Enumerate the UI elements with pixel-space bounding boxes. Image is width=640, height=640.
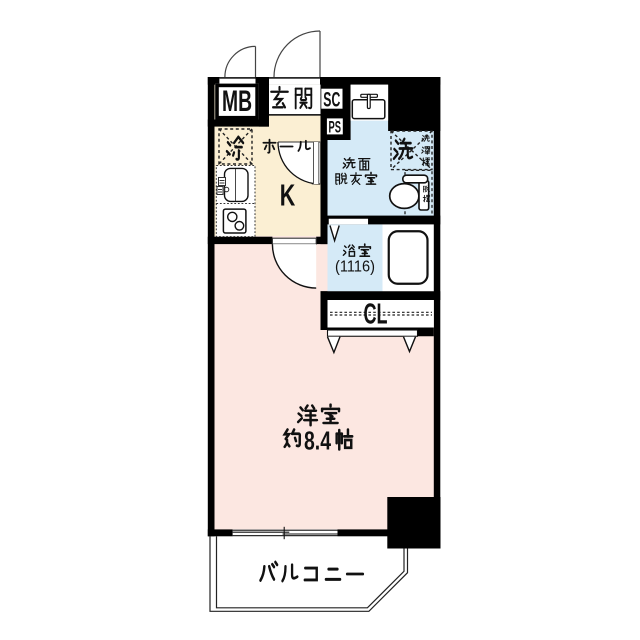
svg-text:MB: MB xyxy=(222,85,252,118)
svg-text:K: K xyxy=(280,178,296,212)
svg-text:8.4: 8.4 xyxy=(304,428,332,456)
svg-text:(1116): (1116) xyxy=(335,259,375,276)
svg-text:CL: CL xyxy=(364,298,388,330)
svg-text:SC: SC xyxy=(323,89,340,112)
svg-text:PS: PS xyxy=(329,117,342,136)
